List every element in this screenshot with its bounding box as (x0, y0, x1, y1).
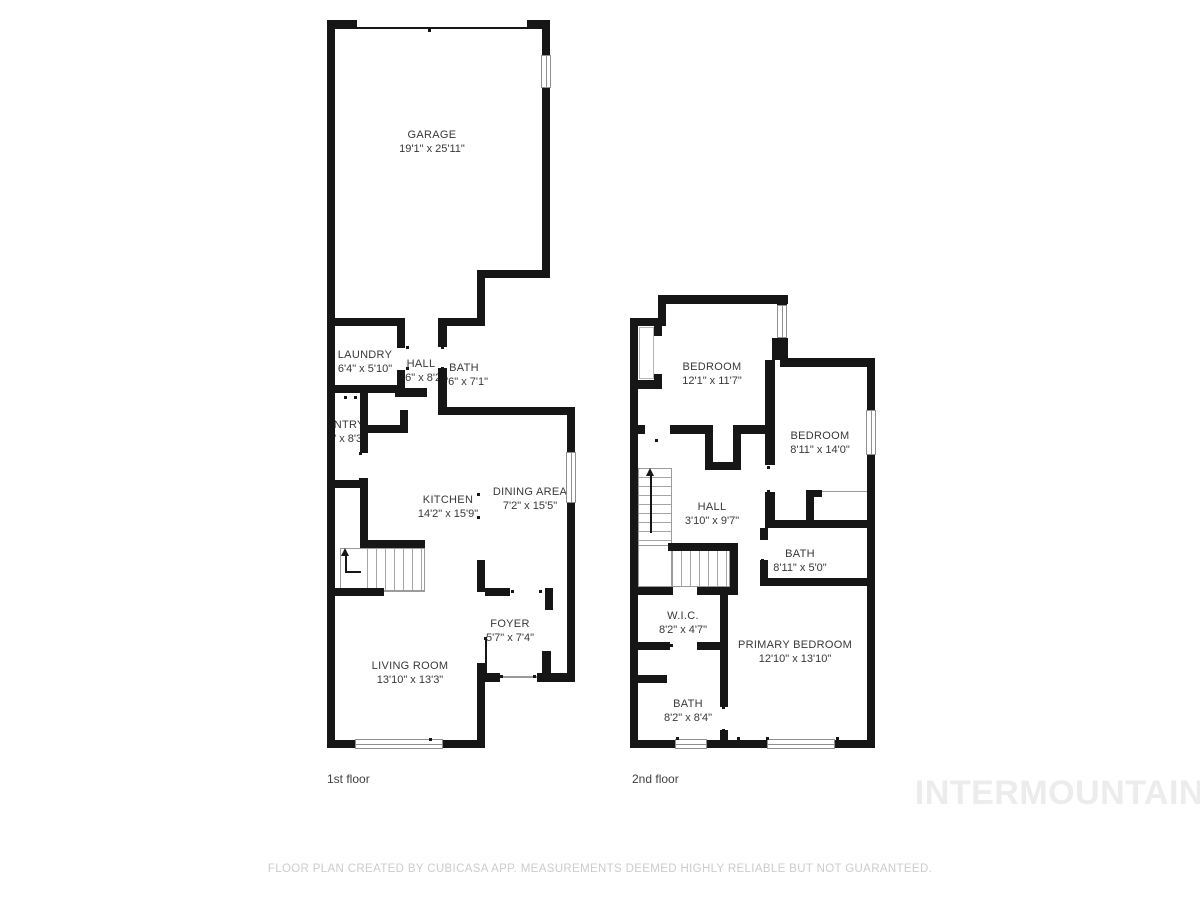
room-dimensions: 13'10" x 13'3" (372, 673, 449, 687)
wall (485, 640, 487, 673)
room-dimensions: 8'2" x 8'4" (664, 711, 712, 725)
room-label-bath-2f-primary: BATH 8'2" x 8'4" (664, 697, 712, 725)
door-marker (670, 644, 673, 647)
wall (668, 543, 730, 551)
room-name: FOYER (486, 617, 534, 631)
wall (327, 385, 405, 393)
door-marker (722, 729, 725, 732)
door-marker (543, 412, 546, 415)
wall (327, 20, 335, 748)
room-dimensions: 3'10" x 9'7" (685, 514, 739, 528)
wall (397, 326, 405, 348)
room-label-bedroom-1: BEDROOM 12'1" x 11'7" (682, 360, 742, 388)
wall (345, 571, 361, 573)
stairs-2f-upper (638, 468, 672, 546)
door-marker (539, 590, 542, 593)
wall (697, 642, 728, 650)
wall (327, 740, 357, 748)
wall (357, 27, 527, 29)
room-name: BEDROOM (790, 429, 850, 443)
wall (765, 360, 775, 465)
wall-thin-line (822, 491, 868, 492)
wall (477, 663, 485, 748)
door-marker (429, 738, 432, 741)
room-dimensions: 12'10" x 13'10" (738, 652, 852, 666)
wall (485, 588, 510, 596)
wall (438, 318, 485, 326)
room-name: BEDROOM (682, 360, 742, 374)
stairs-2f-lower (672, 545, 730, 587)
room-dimensions: 8'11" x 14'0" (790, 443, 850, 457)
wall (567, 503, 575, 673)
door-marker (761, 536, 764, 539)
floor-label-2nd: 2nd floor (632, 772, 679, 786)
wall (806, 490, 814, 523)
wall (477, 560, 485, 592)
door-marker (734, 428, 737, 431)
wall (867, 358, 875, 410)
room-name: BATH (440, 361, 488, 375)
wall (485, 407, 575, 415)
window (767, 739, 835, 749)
room-dimensions: 6'4" x 5'10" (338, 362, 392, 376)
floor-label-1st: 1st floor (327, 772, 370, 786)
room-name: BATH (773, 547, 826, 561)
room-name: LAUNDRY (338, 348, 392, 362)
window (777, 305, 787, 338)
door-marker (836, 737, 839, 740)
wall (630, 318, 638, 748)
room-label-bath-2f-small: BATH 8'11" x 5'0" (773, 547, 826, 575)
door-marker (406, 346, 409, 349)
room-label-bath-1f: BATH 2'6" x 7'1" (440, 361, 488, 389)
wall (327, 20, 357, 29)
wall (545, 588, 553, 610)
room-label-bedroom-2: BEDROOM 8'11" x 14'0" (790, 429, 850, 457)
wall (777, 295, 787, 305)
wall (638, 380, 662, 389)
door-marker (359, 478, 362, 481)
wall (633, 425, 645, 434)
wall (542, 88, 550, 278)
stairs-up-arrow-icon (646, 468, 654, 476)
door-marker (676, 737, 679, 740)
door-marker (737, 737, 740, 740)
room-name: PRIMARY BEDROOM (738, 638, 852, 652)
room-name: KITCHEN (418, 493, 478, 507)
wall-thin-line (382, 590, 425, 591)
door-marker (697, 644, 700, 647)
stairs-2f-corner (638, 545, 672, 587)
door-marker (344, 396, 347, 399)
wall (360, 393, 368, 453)
wall (483, 270, 550, 278)
room-name: HALL (685, 500, 739, 514)
room-name: DINING AREA (493, 485, 567, 499)
wall (670, 425, 713, 434)
wall-thin-line (500, 676, 537, 678)
door-marker (500, 675, 503, 678)
wall (537, 673, 575, 682)
room-dimensions: 2'6" x 7'1" (440, 375, 488, 389)
wall (630, 740, 677, 748)
wall (697, 587, 738, 595)
door-marker (767, 490, 770, 493)
room-dimensions: 14'2" x 15'9" (418, 507, 478, 521)
door-marker (808, 523, 811, 526)
wall (360, 478, 368, 548)
door-marker (477, 516, 480, 519)
room-label-foyer: FOYER 5'7" x 7'4" (486, 617, 534, 645)
room-dimensions: 8'2" x 4'7" (659, 623, 707, 637)
room-name: GARAGE (399, 128, 465, 142)
wall (633, 587, 673, 595)
door-marker (441, 367, 444, 370)
room-label-wic: W.I.C. 8'2" x 4'7" (659, 609, 707, 637)
door-marker (766, 737, 769, 740)
room-dimensions: 12'1" x 11'7" (682, 374, 742, 388)
wall (363, 425, 408, 433)
room-label-dining-area: DINING AREA 7'2" x 15'5" (493, 485, 567, 513)
wall (767, 520, 875, 528)
wall (633, 642, 670, 650)
door-marker (697, 590, 700, 593)
door-marker (484, 637, 487, 640)
wall (780, 358, 875, 367)
room-dimensions: 5'7" x 7'4" (486, 631, 534, 645)
wall (438, 326, 447, 347)
disclaimer-text: FLOOR PLAN CREATED BY CUBICASA APP. MEAS… (0, 863, 1200, 875)
wall (327, 318, 405, 326)
wall (705, 462, 741, 470)
door-marker (670, 590, 673, 593)
room-dimensions: 7'2" x 15'5" (493, 499, 567, 513)
door-marker (761, 559, 764, 562)
wall (650, 475, 652, 533)
wall (772, 338, 788, 360)
wall (654, 326, 662, 336)
window (675, 739, 707, 749)
room-name: LIVING ROOM (372, 659, 449, 673)
door-marker (710, 428, 713, 431)
wall (567, 407, 575, 452)
window (541, 55, 551, 88)
stairs-up-arrow-icon (341, 548, 349, 556)
door-marker (655, 439, 658, 442)
room-label-garage: GARAGE 19'1" x 25'11" (399, 128, 465, 156)
wall (720, 650, 728, 707)
door-marker (767, 466, 770, 469)
wall (760, 578, 867, 586)
wall (363, 540, 425, 548)
wall (327, 588, 384, 596)
door-marker (428, 29, 431, 32)
room-label-primary-bedroom: PRIMARY BEDROOM 12'10" x 13'10" (738, 638, 852, 666)
wall (327, 480, 368, 488)
door-marker (359, 452, 362, 455)
room-label-kitchen: KITCHEN 14'2" x 15'9" (418, 493, 478, 521)
wall (633, 675, 667, 683)
door-marker (406, 367, 409, 370)
door-marker (354, 396, 357, 399)
room-label-living-room: LIVING ROOM 13'10" x 13'3" (372, 659, 449, 687)
door-marker (441, 346, 444, 349)
floorplan-canvas: GARAGE 19'1" x 25'11" LAUNDRY 6'4" x 5'1… (0, 0, 1200, 900)
room-dimensions: 8'11" x 5'0" (773, 561, 826, 575)
wall (542, 20, 550, 55)
door-marker (477, 493, 480, 496)
window (566, 452, 576, 503)
wall (443, 740, 485, 748)
room-label-hall-2f: HALL 3'10" x 9'7" (685, 500, 739, 528)
door-marker (511, 590, 514, 593)
wall (395, 388, 427, 397)
wall (707, 740, 767, 748)
door-marker (331, 414, 334, 417)
closet-niche (639, 327, 654, 379)
wall (485, 673, 500, 682)
room-label-laundry: LAUNDRY 6'4" x 5'10" (338, 348, 392, 376)
room-dimensions: 19'1" x 25'11" (399, 142, 465, 156)
room-name: W.I.C. (659, 609, 707, 623)
door-marker (533, 675, 536, 678)
wall (835, 740, 875, 748)
watermark-text: INTERMOUNTAIN (915, 774, 1200, 813)
wall (867, 455, 875, 748)
wall (438, 407, 491, 415)
door-marker (722, 706, 725, 709)
room-name: BATH (664, 697, 712, 711)
wall (658, 295, 788, 304)
window (866, 410, 876, 455)
